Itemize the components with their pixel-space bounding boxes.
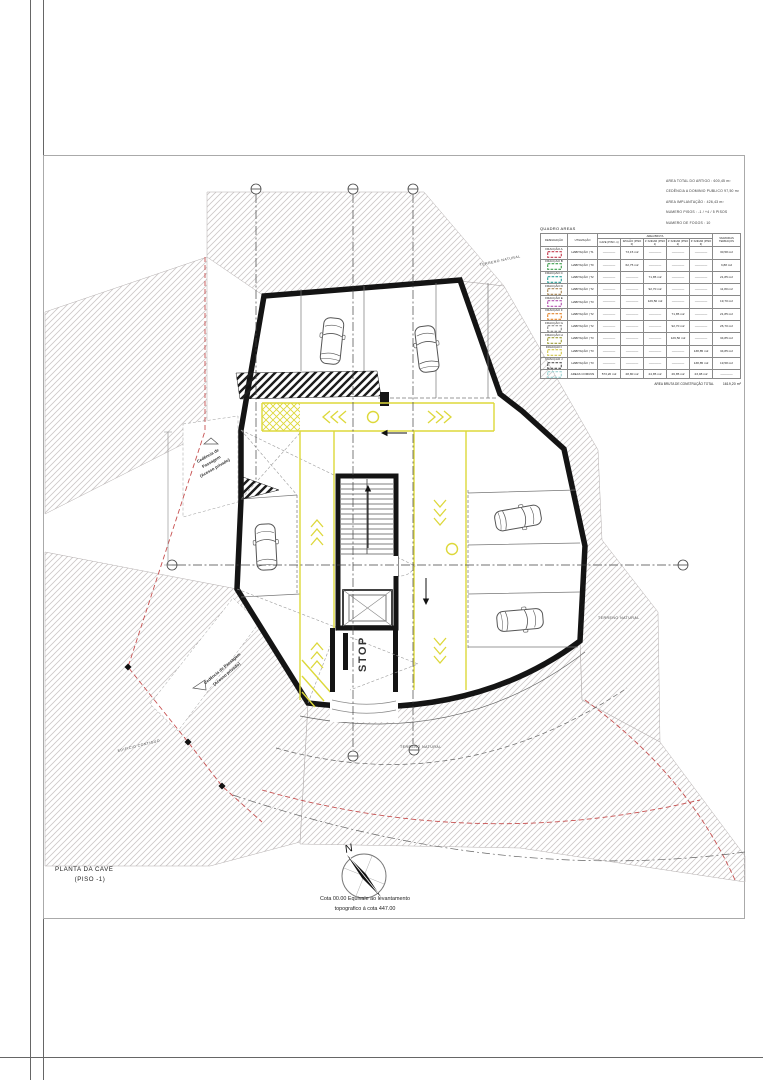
note-line: Cota 00.00 Equivale ao levantamento bbox=[297, 895, 433, 905]
drawing-sheet: STOP TERRENO NATURAL T bbox=[0, 0, 763, 1080]
cell-andar1: 92,70 m2 bbox=[644, 284, 667, 296]
door-opening bbox=[391, 556, 398, 576]
info-line: AREA TOTAL DO ARTIGO : 600,45 m² bbox=[666, 176, 750, 186]
floor-plan-drawing: STOP TERRENO NATURAL T bbox=[0, 0, 763, 1080]
info-line: AREA IMPLANTAÇÃO : 426,43 m² bbox=[666, 197, 750, 207]
cell-andar1: 24,85 m2 bbox=[644, 370, 667, 379]
cell-andar2: 92,70 m2 bbox=[667, 321, 690, 333]
table-row: FRACÇÃO A HABITAÇÃO | T1 ———— 73,15 m2 —… bbox=[541, 247, 741, 259]
cell-cave: ———— bbox=[598, 333, 621, 345]
cell-andar3: ———— bbox=[690, 333, 713, 345]
cell-andar1: 129,50 m2 bbox=[644, 296, 667, 308]
total-label: AREA BRUTA DE CONSTRUÇÃO TOTAL bbox=[654, 382, 713, 386]
col-header-floor: 1º ANDAR (PISO 1) bbox=[644, 239, 667, 247]
areas-table: QUADRO AREAS DESIGNAÇÃO UTILIZAÇÃO AREA … bbox=[540, 226, 741, 386]
cell-andar1: ———— bbox=[644, 333, 667, 345]
cell-andar1: ———— bbox=[644, 357, 667, 369]
table-row: FRACÇÃO H HABITAÇÃO | T3 ———— ———— ———— … bbox=[541, 333, 741, 345]
fraction-label: FRACÇÃO I bbox=[542, 346, 567, 349]
cell-rchao: ———— bbox=[621, 271, 644, 283]
cell-cave: ———— bbox=[598, 271, 621, 283]
cell-utilizacao: HABITAÇÃO | T3 bbox=[568, 296, 598, 308]
note-line: topografico á cota 447.00 bbox=[297, 905, 433, 915]
cell-andar1: ———— bbox=[644, 247, 667, 259]
cell-cave: 573,20 m2 bbox=[598, 370, 621, 379]
fraction-color-swatch bbox=[547, 362, 562, 369]
fraction-label: FRACÇÃO G bbox=[542, 322, 567, 325]
cell-rchao: ———— bbox=[621, 308, 644, 320]
fraction-color-swatch bbox=[547, 325, 562, 332]
fraction-color-swatch bbox=[547, 288, 562, 295]
fraction-label: FRACÇÃO D bbox=[542, 285, 567, 288]
cell-designacao: FRACÇÃO H bbox=[541, 333, 568, 345]
cell-cave: ———— bbox=[598, 357, 621, 369]
cell-andar3: ———— bbox=[690, 284, 713, 296]
cell-designacao: FRACÇÃO F bbox=[541, 308, 568, 320]
col-header-floor: 2º ANDAR (PISO 2) bbox=[667, 239, 690, 247]
cell-andar1: 71,85 m2 bbox=[644, 271, 667, 283]
cell-andar3: ———— bbox=[690, 247, 713, 259]
info-line: CEDÊNCIA A DOMINIO PUBLICO 97,50 m² bbox=[666, 186, 750, 196]
cell-andar2: ———— bbox=[667, 247, 690, 259]
cell-andar3: 23,08 m2 bbox=[690, 370, 713, 379]
stair-core bbox=[338, 476, 398, 628]
cell-andar3: ———— bbox=[690, 271, 713, 283]
col-header-floor: 3º ANDAR (PISO 3) bbox=[690, 239, 713, 247]
fraction-label: FRACÇÃO E bbox=[542, 297, 567, 300]
fraction-color-swatch bbox=[547, 276, 562, 283]
info-block: AREA TOTAL DO ARTIGO : 600,45 m² CEDÊNCI… bbox=[666, 176, 750, 228]
cell-designacao: FRACÇÃO B bbox=[541, 259, 568, 271]
drawing-subtitle: (PISO -1) bbox=[55, 876, 125, 883]
cell-designacao: FRACÇÃO J bbox=[541, 357, 568, 369]
cell-rchao: ———— bbox=[621, 321, 644, 333]
terreno-natural-label: TERRENO NATURAL bbox=[598, 616, 640, 620]
total-value: 1619,20 m² bbox=[723, 382, 741, 386]
cell-varandas: 34,85 m2 bbox=[713, 345, 741, 357]
cell-andar3: ———— bbox=[690, 321, 713, 333]
cell-cave: ———— bbox=[598, 284, 621, 296]
table-row: FRACÇÃO C HABITAÇÃO | T2 ———— ———— 71,85… bbox=[541, 271, 741, 283]
cell-utilizacao: HABITAÇÃO | T0 bbox=[568, 259, 598, 271]
table-row: FRACÇÃO B HABITAÇÃO | T0 ———— 62,75 m2 —… bbox=[541, 259, 741, 271]
cell-andar3: ———— bbox=[690, 308, 713, 320]
cell-utilizacao: HABITAÇÃO | T3 bbox=[568, 333, 598, 345]
cell-cave: ———— bbox=[598, 296, 621, 308]
cell-andar1: ———— bbox=[644, 308, 667, 320]
fraction-color-swatch bbox=[547, 251, 562, 258]
cell-designacao: FRACÇÃO C bbox=[541, 271, 568, 283]
total-row: AREA BRUTA DE CONSTRUÇÃO TOTAL1619,20 m² bbox=[540, 382, 741, 386]
cell-andar2: ———— bbox=[667, 284, 690, 296]
cell-andar2: 129,50 m2 bbox=[667, 333, 690, 345]
table-row: FRACÇÃO F HABITAÇÃO | T2 ———— ———— ———— … bbox=[541, 308, 741, 320]
cell-andar2: ———— bbox=[667, 271, 690, 283]
table-row: FRACÇÃO I HABITAÇÃO | T3 ———— ———— ———— … bbox=[541, 345, 741, 357]
fraction-label: FRACÇÃO F bbox=[542, 309, 567, 312]
cell-utilizacao: HABITAÇÃO | T2 bbox=[568, 321, 598, 333]
cell-varandas: 21,85 m2 bbox=[713, 271, 741, 283]
lane-crosshatch bbox=[262, 403, 300, 431]
cell-cave: ———— bbox=[598, 259, 621, 271]
cell-varandas: 34,85 m2 bbox=[713, 333, 741, 345]
cell-designacao bbox=[541, 370, 568, 379]
cell-utilizacao: HABITAÇÃO | T3 bbox=[568, 345, 598, 357]
stop-label: STOP bbox=[357, 636, 369, 672]
cell-rchao: 28,80 m2 bbox=[621, 370, 644, 379]
col-header-varandas: VARANDAS TERRAÇOS bbox=[713, 234, 741, 247]
axis-bubble bbox=[348, 751, 358, 761]
cell-utilizacao: AREAS COMUNS bbox=[568, 370, 598, 379]
north-compass: N bbox=[342, 842, 386, 898]
cell-varandas: 26,70 m2 bbox=[713, 321, 741, 333]
areas-table-title: QUADRO AREAS bbox=[540, 226, 741, 231]
table-row: AREAS COMUNS 573,20 m2 28,80 m2 24,85 m2… bbox=[541, 370, 741, 379]
fraction-label: FRACÇÃO H bbox=[542, 334, 567, 337]
info-line: NUMERO PISOS : -1 / +4 / 5 PISOS bbox=[666, 207, 750, 217]
cell-andar2: 71,85 m2 bbox=[667, 308, 690, 320]
wall-pillar bbox=[380, 392, 389, 406]
title-block: PLANTA DA CAVE (PISO -1) bbox=[55, 866, 125, 883]
cell-rchao: ———— bbox=[621, 333, 644, 345]
cell-rchao: 73,15 m2 bbox=[621, 247, 644, 259]
terreno-natural-label: TERRENO NATURAL bbox=[479, 254, 521, 267]
cell-cave: ———— bbox=[598, 247, 621, 259]
cell-rchao: ———— bbox=[621, 296, 644, 308]
cell-andar1: ———— bbox=[644, 345, 667, 357]
col-header-floor: CAVE (PISO -1) bbox=[598, 239, 621, 247]
table-row: FRACÇÃO J HABITAÇÃO | T3 ———— ———— ———— … bbox=[541, 357, 741, 369]
cell-andar3: 138,85 m2 bbox=[690, 357, 713, 369]
fraction-color-swatch bbox=[547, 263, 562, 270]
fraction-color-swatch bbox=[547, 371, 562, 378]
cell-utilizacao: HABITAÇÃO | T2 bbox=[568, 271, 598, 283]
fraction-color-swatch bbox=[547, 337, 562, 344]
cell-andar2: ———— bbox=[667, 296, 690, 308]
fraction-label: FRACÇÃO C bbox=[542, 272, 567, 275]
cell-andar1: ———— bbox=[644, 259, 667, 271]
cell-cave: ———— bbox=[598, 321, 621, 333]
fraction-color-swatch bbox=[547, 313, 562, 320]
cell-andar3: ———— bbox=[690, 259, 713, 271]
cell-utilizacao: HABITAÇÃO | T1 bbox=[568, 247, 598, 259]
cell-andar2: ———— bbox=[667, 259, 690, 271]
cell-rchao: ———— bbox=[621, 345, 644, 357]
cell-rchao: ———— bbox=[621, 284, 644, 296]
cell-rchao: ———— bbox=[621, 357, 644, 369]
cell-varandas: 30,58 m2 bbox=[713, 247, 741, 259]
axis-bubble bbox=[251, 184, 261, 194]
cell-utilizacao: HABITAÇÃO | T2 bbox=[568, 284, 598, 296]
cell-designacao: FRACÇÃO D bbox=[541, 284, 568, 296]
cell-designacao: FRACÇÃO A bbox=[541, 247, 568, 259]
table-row: FRACÇÃO D HABITAÇÃO | T2 ———— ———— 92,70… bbox=[541, 284, 741, 296]
cell-varandas: 19,58 m2 bbox=[713, 357, 741, 369]
cell-cave: ———— bbox=[598, 345, 621, 357]
cell-andar3: 138,85 m2 bbox=[690, 345, 713, 357]
cell-andar2: 26,85 m2 bbox=[667, 370, 690, 379]
fraction-label: FRACÇÃO J bbox=[542, 358, 567, 361]
table-row: FRACÇÃO G HABITAÇÃO | T2 ———— ———— ———— … bbox=[541, 321, 741, 333]
cell-andar2: ———— bbox=[667, 345, 690, 357]
cell-utilizacao: HABITAÇÃO | T2 bbox=[568, 308, 598, 320]
fraction-label: FRACÇÃO A bbox=[542, 248, 567, 251]
cell-designacao: FRACÇÃO E bbox=[541, 296, 568, 308]
cell-varandas: 19,70 m2 bbox=[713, 296, 741, 308]
col-header-designacao: DESIGNAÇÃO bbox=[541, 234, 568, 247]
axis-bubble bbox=[408, 184, 418, 194]
drawing-title: PLANTA DA CAVE bbox=[55, 866, 125, 873]
elevator bbox=[343, 590, 392, 626]
cell-varandas: 3,88 m2 bbox=[713, 259, 741, 271]
areas-table-grid: DESIGNAÇÃO UTILIZAÇÃO AREA BRUTA VARANDA… bbox=[540, 233, 741, 379]
ramp-gate-bar bbox=[343, 633, 348, 670]
axis-bubble bbox=[678, 560, 688, 570]
table-row: FRACÇÃO E HABITAÇÃO | T3 ———— ———— 129,5… bbox=[541, 296, 741, 308]
cell-varandas: 21,85 m2 bbox=[713, 308, 741, 320]
cell-rchao: 62,75 m2 bbox=[621, 259, 644, 271]
cell-varandas: ———— bbox=[713, 370, 741, 379]
terreno-natural-label: TERRENO NATURAL bbox=[400, 745, 442, 749]
axis-bubble bbox=[348, 184, 358, 194]
fraction-color-swatch bbox=[547, 300, 562, 307]
cell-andar2: ———— bbox=[667, 357, 690, 369]
col-header-utilizacao: UTILIZAÇÃO bbox=[568, 234, 598, 247]
fraction-color-swatch bbox=[547, 349, 562, 356]
col-header-floor: R/CHÃO (PISO 0) bbox=[621, 239, 644, 247]
cell-cave: ———— bbox=[598, 308, 621, 320]
cell-andar3: ———— bbox=[690, 296, 713, 308]
elevation-note: Cota 00.00 Equivale ao levantamento topo… bbox=[297, 895, 433, 914]
cell-varandas: 11,80 m2 bbox=[713, 284, 741, 296]
cell-designacao: FRACÇÃO I bbox=[541, 345, 568, 357]
fraction-label: FRACÇÃO B bbox=[542, 260, 567, 263]
cell-andar1: ———— bbox=[644, 321, 667, 333]
cell-designacao: FRACÇÃO G bbox=[541, 321, 568, 333]
cell-utilizacao: HABITAÇÃO | T3 bbox=[568, 357, 598, 369]
